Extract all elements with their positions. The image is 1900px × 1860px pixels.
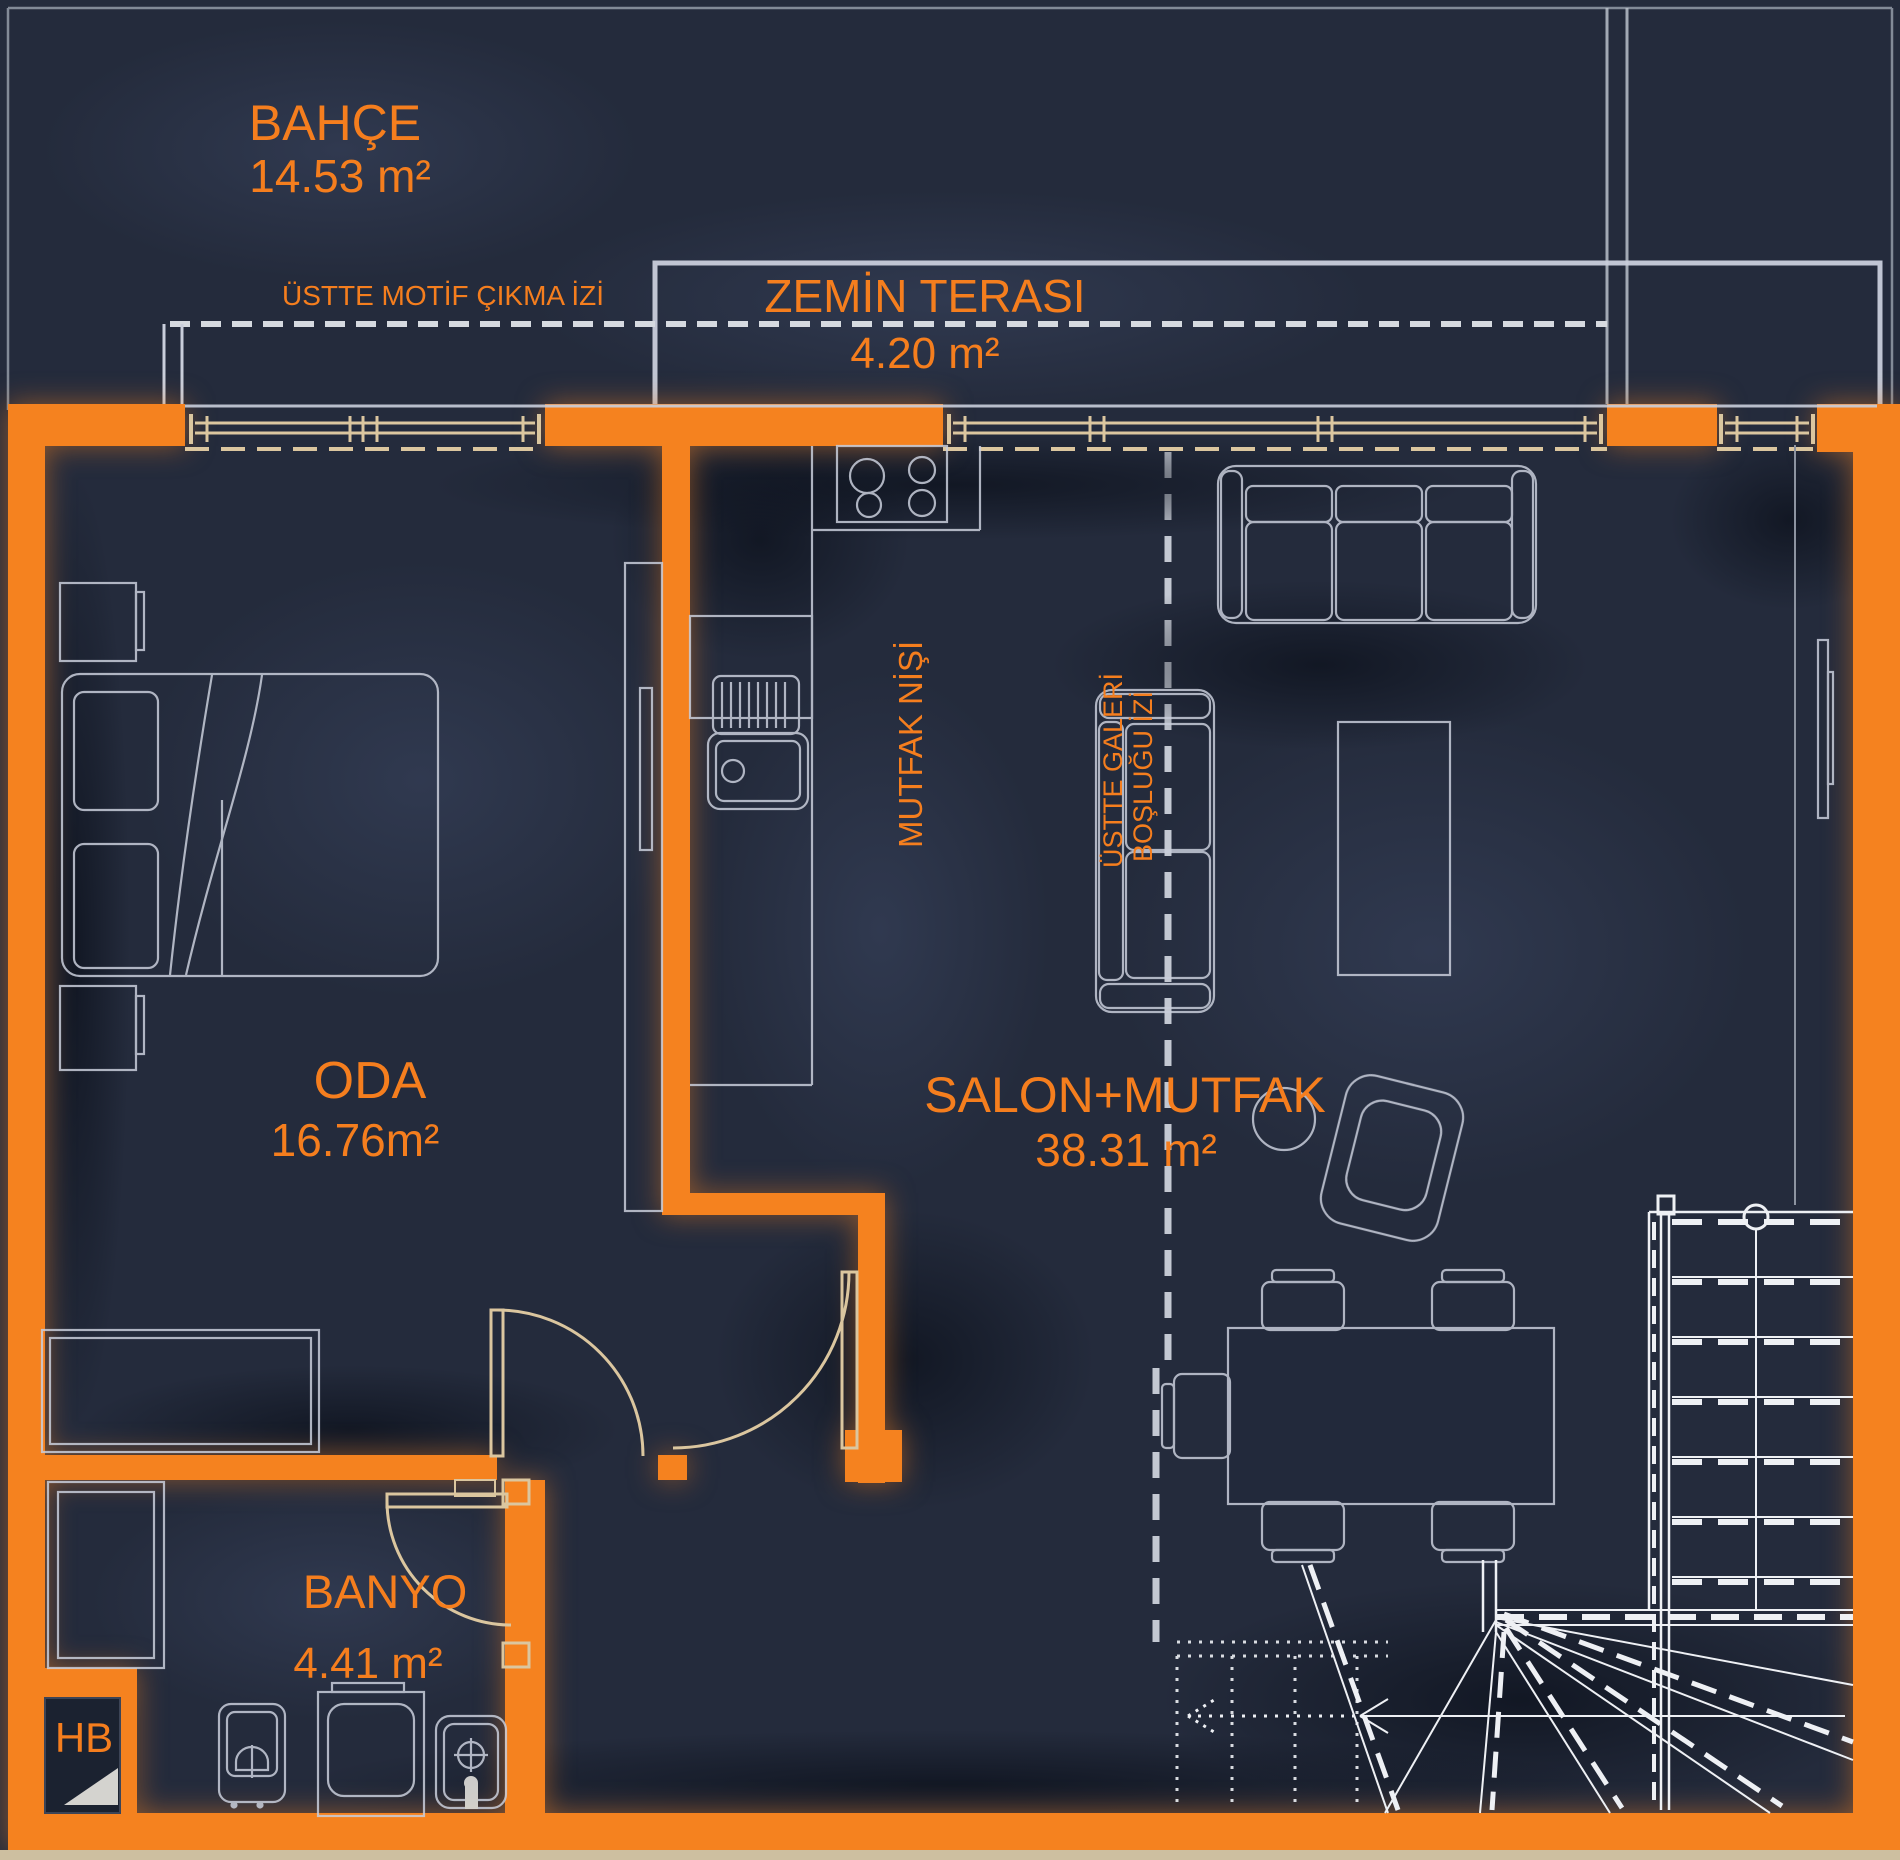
floor-plan: BAHÇE 14.53 m² ÜSTTE MOTİF ÇIKMA İZİ ZEM… xyxy=(0,0,1900,1860)
wall-kitchen-divider xyxy=(662,420,690,1213)
wall-hb-right xyxy=(120,1698,137,1818)
oda-label: ODA xyxy=(314,1052,427,1110)
wall-hall-top xyxy=(662,1193,885,1215)
salon-label: SALON+MUTFAK xyxy=(924,1067,1326,1123)
wall-banyo-right xyxy=(505,1480,545,1813)
wall-top-middle xyxy=(545,404,943,446)
bahce-area: 14.53 m² xyxy=(249,150,431,202)
wall-top-right-pier xyxy=(1607,404,1717,446)
wall-left xyxy=(8,404,45,1850)
motif-annotation: ÜSTTE MOTİF ÇIKMA İZİ xyxy=(282,280,604,311)
galeri-annotation-line1: ÜSTTE GALERİ xyxy=(1097,673,1128,868)
banyo-area: 4.41 m² xyxy=(293,1639,442,1688)
wall-door-pier xyxy=(658,1455,687,1480)
hb-label: HB xyxy=(55,1714,113,1761)
wall-hb-top xyxy=(45,1668,137,1698)
wall-right xyxy=(1853,404,1900,1850)
wall-hinge-block xyxy=(845,1430,902,1482)
wall-oda-banyo xyxy=(45,1455,497,1480)
mutfak-nisi-annotation: MUTFAK NİŞİ xyxy=(892,641,929,848)
teras-label: ZEMİN TERASI xyxy=(764,270,1085,322)
bahce-label: BAHÇE xyxy=(249,95,421,151)
teras-area: 4.20 m² xyxy=(850,329,999,378)
banyo-label: BANYO xyxy=(303,1565,468,1618)
galeri-annotation-line2: BOŞLUĞU İZİ xyxy=(1127,691,1158,862)
oda-area: 16.76m² xyxy=(271,1114,440,1166)
wall-bottom xyxy=(8,1813,1900,1850)
dining-table xyxy=(1228,1328,1554,1504)
bottom-edge-strip xyxy=(0,1850,1900,1860)
salon-area: 38.31 m² xyxy=(1035,1124,1217,1176)
